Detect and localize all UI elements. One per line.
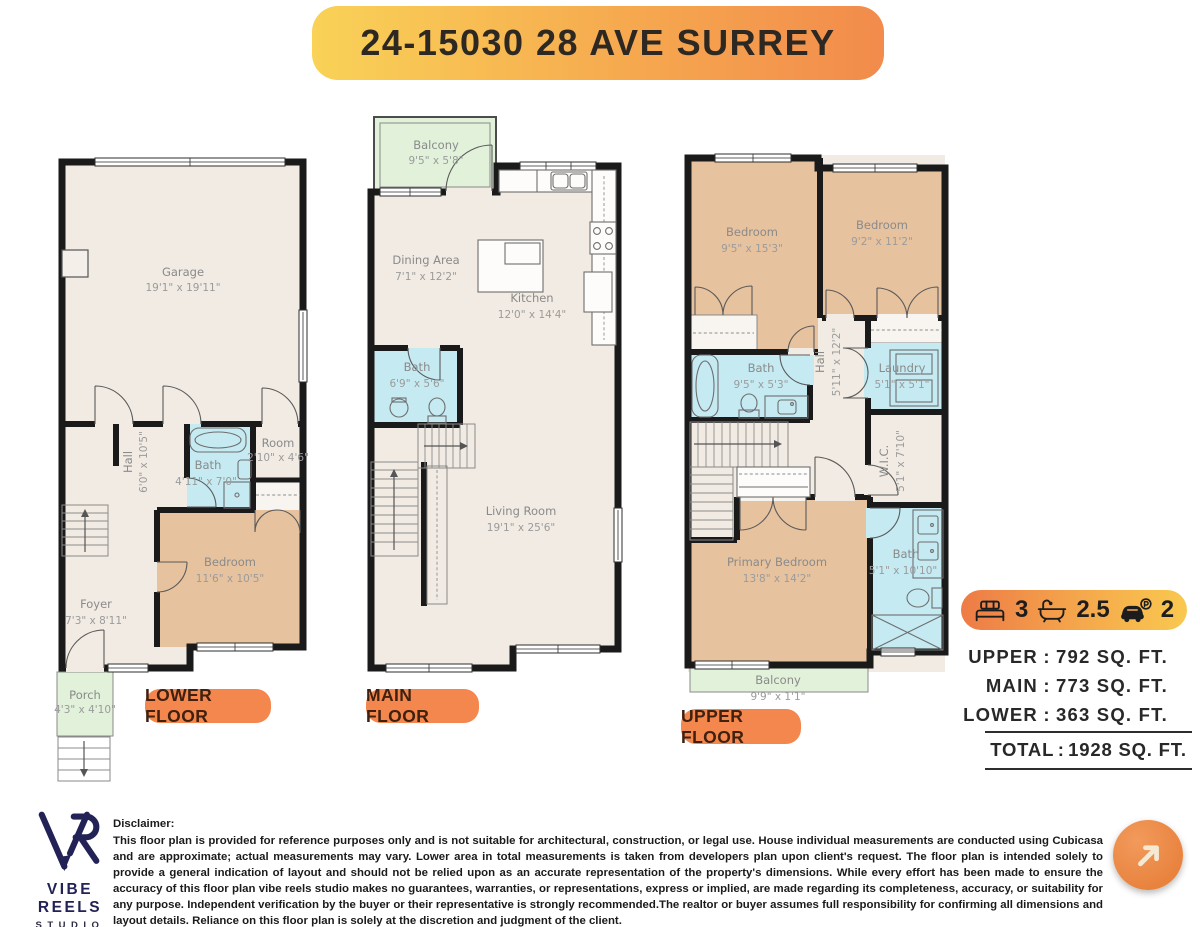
lower-bath-label: Bath	[195, 458, 222, 472]
car-parking-icon	[1119, 597, 1152, 623]
main-balcony-label: Balcony	[413, 138, 459, 152]
main-balcony-dims: 9'5" x 5'8"	[408, 155, 463, 167]
area-row-main: MAIN : 773 SQ. FT.	[958, 675, 1192, 697]
lower-bedroom-label: Bedroom	[204, 555, 256, 569]
main-room-fills	[371, 117, 618, 668]
area-label: MAIN	[958, 675, 1038, 697]
lower-room-label: Room	[262, 436, 295, 450]
baths-count: 2.5	[1076, 596, 1109, 624]
upper-bedroom2-dims: 9'2" x 11'2"	[851, 236, 913, 248]
brand-subtitle: STUDIO	[18, 920, 122, 927]
brand-name: VIBE REELS	[18, 881, 122, 917]
area-separator: :	[1038, 675, 1056, 697]
upper-floor-plan: Bedroom 9'5" x 15'3" Bedroom 9'2" x 11'2…	[675, 140, 960, 718]
main-floor-badge: MAIN FLOOR	[366, 689, 479, 723]
title-banner: 24-15030 28 AVE SURREY	[312, 6, 884, 80]
upper-bath2-label: Bath	[893, 547, 920, 561]
lower-hall-dims: 6'0" x 10'5"	[138, 431, 150, 493]
area-total-value: 1928 SQ. FT.	[1068, 739, 1187, 761]
page-title: 24-15030 28 AVE SURREY	[360, 22, 835, 64]
area-summary: UPPER : 792 SQ. FT. MAIN : 773 SQ. FT. L…	[958, 646, 1192, 733]
lower-bedroom-dims: 11'6" x 10'5"	[196, 573, 264, 585]
area-label: LOWER	[958, 704, 1038, 726]
main-dining-dims: 7'1" x 12'2"	[395, 271, 457, 283]
upper-bath2-dims: 5'1" x 10'10"	[869, 565, 937, 577]
lower-bath-dims: 4'11" x 7'0"	[175, 476, 237, 488]
area-row-upper: UPPER : 792 SQ. FT.	[958, 646, 1192, 668]
area-separator: :	[1038, 646, 1056, 668]
arrow-badge	[1113, 820, 1183, 890]
upper-laundry-dims: 5'1" x 5'1"	[874, 379, 929, 391]
area-total-row: TOTAL : 1928 SQ. FT.	[985, 731, 1192, 770]
lower-garage-label: Garage	[162, 265, 204, 279]
area-separator: :	[1038, 704, 1056, 726]
brand-logo-block: VIBE REELS STUDIO	[18, 810, 122, 927]
bed-icon	[974, 598, 1006, 623]
lower-hall-label: Hall	[121, 451, 135, 473]
area-row-lower: LOWER : 363 SQ. FT.	[958, 704, 1192, 726]
upper-bath1-label: Bath	[748, 361, 775, 375]
area-label: UPPER	[958, 646, 1038, 668]
upper-floor-badge: UPPER FLOOR	[681, 709, 801, 744]
upper-primary-dims: 13'8" x 14'2"	[743, 573, 811, 585]
lower-floor-badge: LOWER FLOOR	[145, 689, 271, 723]
bathtub-icon	[1037, 597, 1067, 623]
upper-bedroom2-label: Bedroom	[856, 218, 908, 232]
area-total-label: TOTAL	[990, 739, 1054, 761]
disclaimer-block: Disclaimer: This floor plan is provided …	[113, 817, 1103, 927]
area-value: 773 SQ. FT.	[1056, 675, 1192, 697]
upper-hall-dims: 5'11" x 12'2"	[831, 328, 843, 396]
upper-bath1-dims: 9'5" x 5'3"	[733, 379, 788, 391]
arrow-up-right-icon	[1129, 836, 1167, 874]
lower-foyer-dims: 7'3" x 8'11"	[65, 615, 127, 627]
main-bath-dims: 6'9" x 5'6"	[389, 378, 444, 390]
floor-plan-flyer: 24-15030 28 AVE SURREY	[0, 0, 1200, 927]
area-value: 792 SQ. FT.	[1056, 646, 1192, 668]
property-stats-pill: 3 2.5 2	[961, 590, 1187, 630]
parking-count: 2	[1161, 596, 1174, 624]
upper-primary-label: Primary Bedroom	[727, 555, 827, 569]
area-separator: :	[1054, 739, 1068, 761]
upper-bedroom1-label: Bedroom	[726, 225, 778, 239]
main-living-dims: 19'1" x 25'6"	[487, 522, 555, 534]
disclaimer-body: This floor plan is provided for referenc…	[113, 834, 1103, 927]
lower-porch-dims: 4'3" x 4'10"	[54, 704, 116, 716]
upper-wic-dims: 5'1" x 7'10"	[895, 430, 907, 492]
lower-room-dims: 2'10" x 4'6"	[247, 452, 309, 464]
main-dining-label: Dining Area	[392, 253, 459, 267]
upper-balcony-dims: 9'9" x 1'1"	[750, 691, 805, 703]
upper-floor-badge-label: UPPER FLOOR	[681, 706, 801, 748]
upper-bedroom1-dims: 9'5" x 15'3"	[721, 243, 783, 255]
main-bath-label: Bath	[404, 360, 431, 374]
lower-porch-label: Porch	[69, 688, 101, 702]
lower-garage-dims: 19'1" x 19'11"	[145, 282, 220, 294]
beds-count: 3	[1015, 596, 1028, 624]
disclaimer-heading: Disclaimer:	[113, 817, 1103, 833]
main-floor-plan: Balcony 9'5" x 5'8" Dining Area 7'1" x 1…	[360, 105, 628, 735]
vibe-reels-logo-icon	[32, 810, 108, 874]
upper-laundry-label: Laundry	[879, 361, 926, 375]
lower-floor-badge-label: LOWER FLOOR	[145, 685, 271, 727]
upper-wic-label: W.I.C.	[877, 445, 891, 477]
upper-balcony-label: Balcony	[755, 673, 801, 687]
main-kitchen-label: Kitchen	[510, 291, 553, 305]
main-living-label: Living Room	[486, 504, 557, 518]
lower-foyer-label: Foyer	[80, 597, 112, 611]
upper-hall-label: Hall	[813, 351, 827, 373]
area-value: 363 SQ. FT.	[1056, 704, 1192, 726]
main-kitchen-dims: 12'0" x 14'4"	[498, 309, 566, 321]
main-floor-badge-label: MAIN FLOOR	[366, 685, 479, 727]
